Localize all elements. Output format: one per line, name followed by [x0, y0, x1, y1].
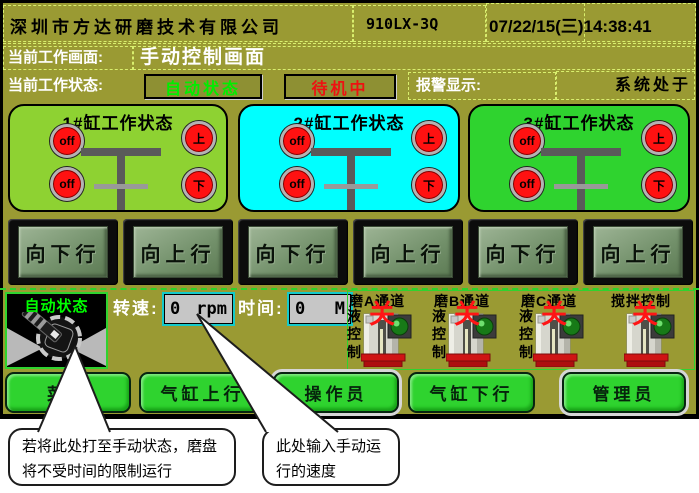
- hmi-screenshot: 深圳市方达研磨技术有限公司 910LX-3Q 07/22/15(三)14:38:…: [0, 0, 699, 493]
- auto-state-indicator[interactable]: 自动状态: [144, 74, 262, 99]
- speed-callout: 此处输入手动运行的速度: [262, 428, 400, 486]
- time-label: 时间:: [238, 292, 284, 326]
- company-name: 深圳市方达研磨技术有限公司: [10, 13, 283, 38]
- cylinder-1-down-button[interactable]: 向下行: [8, 219, 118, 285]
- screen-name: 手动控制画面: [140, 44, 266, 71]
- menu-button[interactable]: 菜单: [5, 372, 131, 413]
- piston-icon: [76, 146, 166, 212]
- knob-callout-text: 若将此处打至手动状态，磨盘将不受时间的限制运行: [22, 438, 217, 480]
- speed-unit: rpm: [196, 299, 227, 319]
- down-indicator-light: 下: [642, 168, 676, 202]
- valve-c-state: 关: [541, 294, 567, 331]
- machine-model: 910LX-3Q: [366, 15, 438, 33]
- work-state-label: 当前工作状态:: [8, 72, 103, 100]
- cylinder-2-down-button[interactable]: 向下行: [238, 219, 348, 285]
- alarm-label: 报警显示:: [416, 72, 481, 100]
- hmi-screen: 深圳市方达研磨技术有限公司 910LX-3Q 07/22/15(三)14:38:…: [0, 0, 699, 419]
- speed-label: 转速:: [113, 292, 159, 326]
- cylinder-2-panel: 2#缸工作状态 off off 上 下: [238, 104, 460, 212]
- header-separator: [3, 43, 696, 44]
- cylinder-up-button[interactable]: 气缸上行: [139, 372, 266, 413]
- rotary-knob-icon: [7, 312, 106, 367]
- knob-callout: 若将此处打至手动状态，磨盘将不受时间的限制运行: [8, 428, 236, 486]
- cylinder-1-up-button[interactable]: 向上行: [123, 219, 233, 285]
- administrator-button[interactable]: 管理员: [562, 372, 686, 413]
- cylinder-3-panel: 3#缸工作状态 off off 上 下: [468, 104, 690, 212]
- piston-icon: [536, 146, 626, 212]
- operator-button[interactable]: 操作员: [273, 372, 399, 413]
- cylinder-2-up-button[interactable]: 向上行: [353, 219, 463, 285]
- datetime-display: 07/22/15(三)14:38:41: [489, 12, 652, 37]
- up-indicator-light: 上: [182, 121, 216, 155]
- valve-b-side-label: 液控制: [432, 307, 447, 361]
- alarm-marquee: 系统处于: [556, 71, 691, 100]
- auto-state-text: 自动状态: [165, 75, 241, 99]
- stir-valve-state: 关: [632, 294, 658, 331]
- speed-input[interactable]: 0 rpm: [162, 292, 235, 326]
- down-indicator-light: 下: [412, 168, 446, 202]
- cylinder-3-down-button[interactable]: 向下行: [468, 219, 578, 285]
- cylinder-3-up-button[interactable]: 向上行: [583, 219, 693, 285]
- piston-icon: [306, 146, 396, 212]
- valve-b-state: 关: [454, 294, 480, 331]
- time-input[interactable]: 0 M: [287, 292, 353, 326]
- cylinder-1-panel: 1#缸工作状态 off off 上 下: [8, 104, 228, 212]
- down-indicator-light: 下: [182, 168, 216, 202]
- time-value: 0: [295, 299, 305, 319]
- up-indicator-light: 上: [412, 121, 446, 155]
- standby-state-indicator[interactable]: 待机中: [284, 74, 396, 99]
- standby-state-text: 待机中: [311, 75, 368, 99]
- cylinder-down-button[interactable]: 气缸下行: [408, 372, 535, 413]
- time-unit: M: [335, 299, 345, 319]
- valve-a-state: 关: [369, 294, 395, 331]
- mode-knob-switch[interactable]: 自动状态: [5, 292, 108, 369]
- screen-label: 当前工作画面:: [8, 46, 103, 70]
- speed-value: 0: [170, 299, 180, 319]
- speed-callout-text: 此处输入手动运行的速度: [276, 438, 381, 480]
- up-indicator-light: 上: [642, 121, 676, 155]
- valve-a-side-label: 液控制: [347, 307, 362, 361]
- valve-c-side-label: 液控制: [519, 307, 534, 361]
